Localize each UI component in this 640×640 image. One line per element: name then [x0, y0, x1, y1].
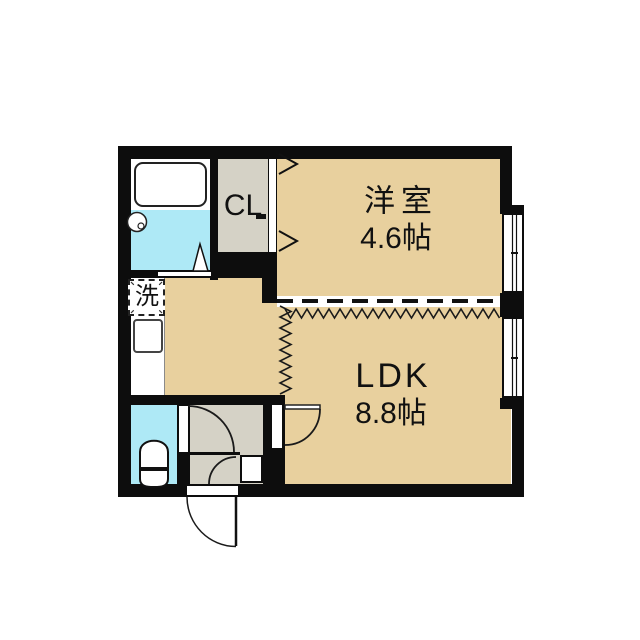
toilet-doorway [179, 406, 188, 452]
wall-mid-horizontal [118, 395, 285, 405]
wall-closet-return [262, 252, 277, 303]
kitchen-sink [133, 319, 163, 353]
laundry-label: 洗 [135, 285, 159, 309]
genkan-step-line [190, 452, 240, 455]
youshitsu-room-name: 洋室 [358, 186, 438, 217]
closet-label: CL [224, 191, 262, 221]
bathroom-floor [131, 210, 210, 272]
toilet-room-floor [131, 405, 177, 487]
wall-bath-bottom [131, 270, 158, 278]
ldk-room-size: 8.8帖 [355, 399, 427, 429]
ldk-doorway [272, 405, 282, 448]
wall-left [118, 146, 131, 497]
wall-right-lower [512, 409, 524, 497]
bathroom-door-threshold [158, 270, 211, 278]
wall-right-mid [500, 293, 524, 317]
room-boundary-band [277, 296, 502, 307]
window-ldk [502, 317, 524, 398]
youshitsu-room-size: 4.6帖 [360, 224, 432, 254]
ldk-room-name: LDK [355, 359, 430, 393]
wall-top [118, 146, 512, 159]
entrance-door-arc [187, 497, 236, 547]
wall-right-upper [500, 146, 512, 213]
shoe-cabinet [240, 455, 263, 483]
bathtub [134, 162, 207, 207]
wall-right-step-lower [500, 398, 524, 409]
closet-door-track [268, 159, 277, 252]
entrance-threshold [187, 484, 238, 497]
window-youshitsu [502, 213, 524, 293]
floor-plan: 洋室 4.6帖 LDK 8.8帖 CL 洗 [0, 0, 640, 640]
